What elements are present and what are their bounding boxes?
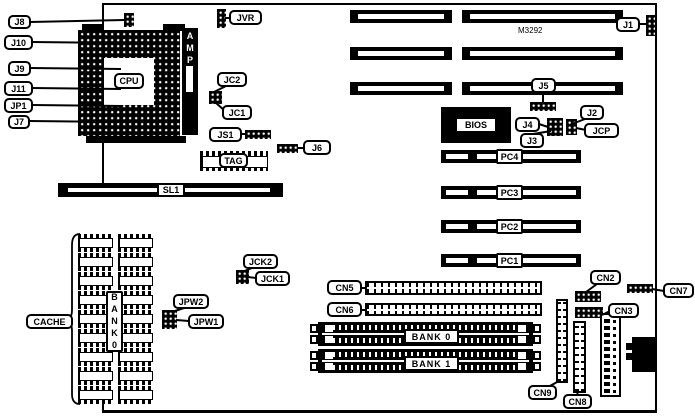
label-pc4: PC4 bbox=[496, 149, 523, 164]
label-bank1: BANK 1 bbox=[404, 356, 459, 371]
label-jvr: JVR bbox=[229, 10, 262, 25]
label-cn9: CN9 bbox=[528, 385, 557, 400]
label-jc1: JC1 bbox=[222, 105, 252, 120]
label-cn8: CN8 bbox=[563, 394, 592, 409]
cpu-label: CPU bbox=[114, 73, 144, 89]
label-cn7: CN7 bbox=[663, 283, 694, 298]
label-jpw2: JPW2 bbox=[173, 294, 209, 309]
bios-label: BIOS bbox=[455, 117, 497, 133]
label-j7: J7 bbox=[8, 115, 30, 129]
motherboard-diagram: J8 J10 J9 J11 JP1 J7 CPU AMP JVR JC2 JC1… bbox=[0, 0, 695, 416]
label-cn6: CN6 bbox=[327, 302, 362, 317]
leader-lines bbox=[0, 0, 695, 416]
label-j1: J1 bbox=[616, 17, 640, 32]
label-jp1: JP1 bbox=[4, 98, 33, 113]
label-j6: J6 bbox=[303, 140, 331, 155]
label-j9: J9 bbox=[8, 61, 31, 76]
label-j11: J11 bbox=[4, 81, 33, 96]
label-cn3: CN3 bbox=[608, 303, 639, 318]
label-jcp: JCP bbox=[584, 123, 619, 138]
label-tag: TAG bbox=[219, 153, 248, 168]
label-j5: J5 bbox=[531, 78, 556, 93]
label-bank0: BANK 0 bbox=[404, 329, 459, 344]
label-pc2: PC2 bbox=[496, 219, 523, 234]
label-j3: J3 bbox=[520, 133, 544, 148]
label-jck2: JCK2 bbox=[243, 254, 278, 269]
label-jpw1: JPW1 bbox=[188, 314, 224, 329]
label-j2: J2 bbox=[580, 105, 604, 120]
label-sl1: SL1 bbox=[157, 183, 185, 197]
label-cn2: CN2 bbox=[590, 270, 621, 285]
label-jc2: JC2 bbox=[217, 72, 247, 87]
label-j4: J4 bbox=[515, 117, 540, 132]
label-pc1: PC1 bbox=[496, 253, 523, 268]
label-cn5: CN5 bbox=[327, 280, 362, 295]
label-js1: JS1 bbox=[209, 127, 242, 142]
label-j8: J8 bbox=[8, 15, 31, 29]
label-j10: J10 bbox=[4, 35, 33, 50]
label-cache: CACHE bbox=[26, 314, 73, 329]
label-jck1: JCK1 bbox=[255, 271, 290, 286]
label-pc3: PC3 bbox=[496, 185, 523, 200]
